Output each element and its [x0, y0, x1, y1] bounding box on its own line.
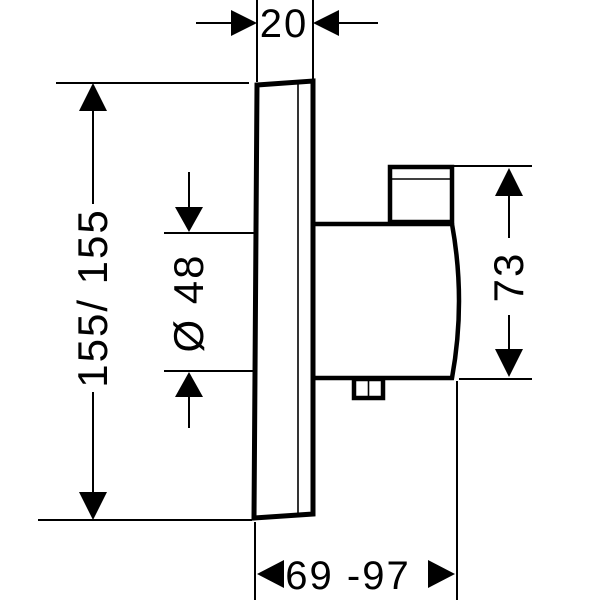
arrow-up-icon — [79, 83, 107, 111]
dimension-body-height: 73 — [454, 166, 532, 379]
arrow-down-icon — [79, 492, 107, 520]
product-outline — [254, 81, 459, 518]
control-handle — [390, 167, 452, 222]
dimension-plate-size: 155/ 155 — [38, 83, 252, 520]
dimension-cartridge-diameter: Ø 48 — [164, 172, 255, 428]
dimension-label-body-height: 73 — [485, 252, 532, 303]
arrow-right-icon — [231, 10, 257, 36]
cover-plate — [254, 81, 313, 518]
dimension-plate-thickness: 20 — [196, 0, 378, 82]
arrow-down-icon — [175, 207, 203, 232]
dimension-label-plate-size: 155/ 155 — [69, 208, 116, 388]
arrow-down-icon — [495, 349, 523, 377]
arrow-left-icon — [257, 560, 284, 588]
dimension-label-cartridge-diameter: Ø 48 — [165, 253, 212, 352]
faucet-dimension-drawing: 20 155/ 155 Ø 48 — [0, 0, 600, 600]
arrow-up-icon — [175, 372, 203, 397]
valve-body — [313, 224, 459, 378]
arrow-left-icon — [313, 10, 339, 36]
dimension-label-plate-thickness: 20 — [260, 2, 309, 46]
dimension-label-installation-depth: 69 -97 — [285, 554, 410, 598]
arrow-right-icon — [428, 560, 455, 588]
arrow-up-icon — [495, 168, 523, 196]
technical-drawing-page: 20 155/ 155 Ø 48 — [0, 0, 600, 600]
